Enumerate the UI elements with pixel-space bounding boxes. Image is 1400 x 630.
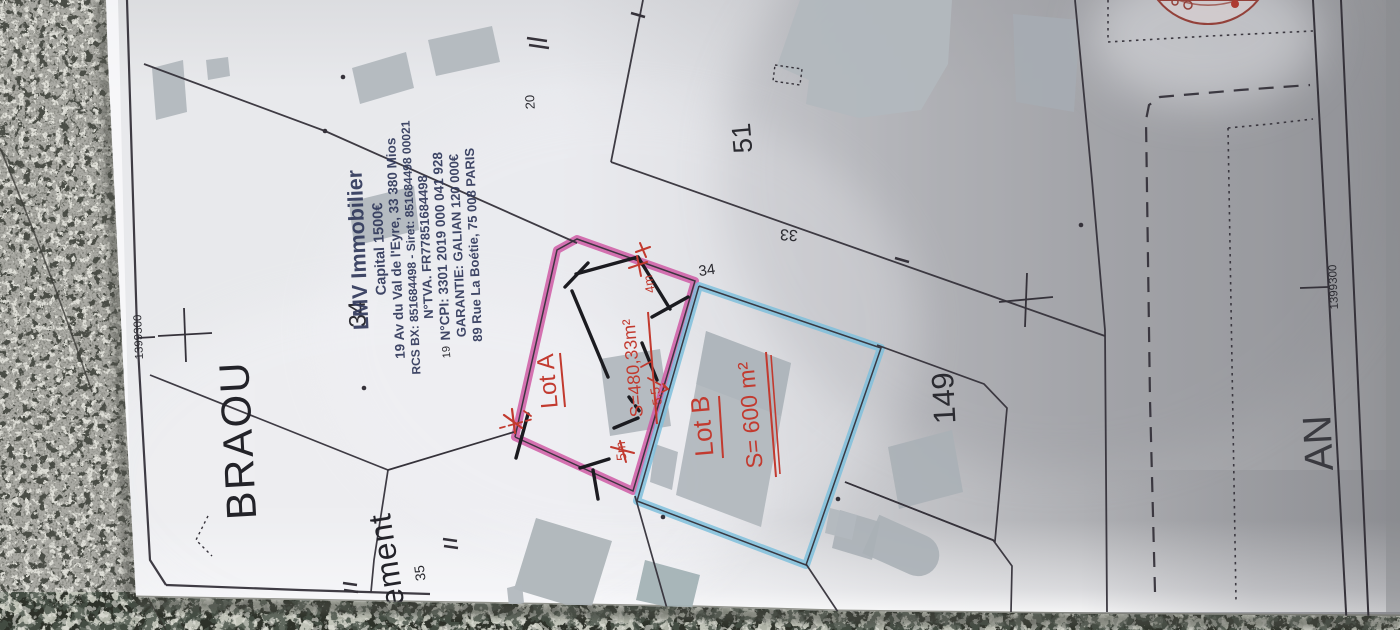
svg-text:149: 149 (925, 371, 963, 424)
svg-text:5,5: 5,5 (647, 386, 665, 406)
svg-text:33: 33 (779, 225, 798, 243)
svg-text:1399300: 1399300 (132, 314, 146, 359)
svg-text:AN: AN (1295, 414, 1342, 472)
svg-text:4m: 4m (640, 274, 658, 294)
svg-text:20: 20 (522, 94, 538, 109)
svg-text:Lot A: Lot A (532, 353, 564, 410)
svg-text:1399300: 1399300 (1327, 264, 1341, 309)
svg-text:34: 34 (697, 261, 716, 280)
svg-text:BRAOU: BRAOU (210, 359, 265, 521)
svg-text:19: 19 (440, 345, 453, 358)
svg-text:51: 51 (726, 122, 759, 155)
svg-text:35: 35 (411, 564, 429, 582)
svg-text:Lot B: Lot B (684, 395, 719, 458)
